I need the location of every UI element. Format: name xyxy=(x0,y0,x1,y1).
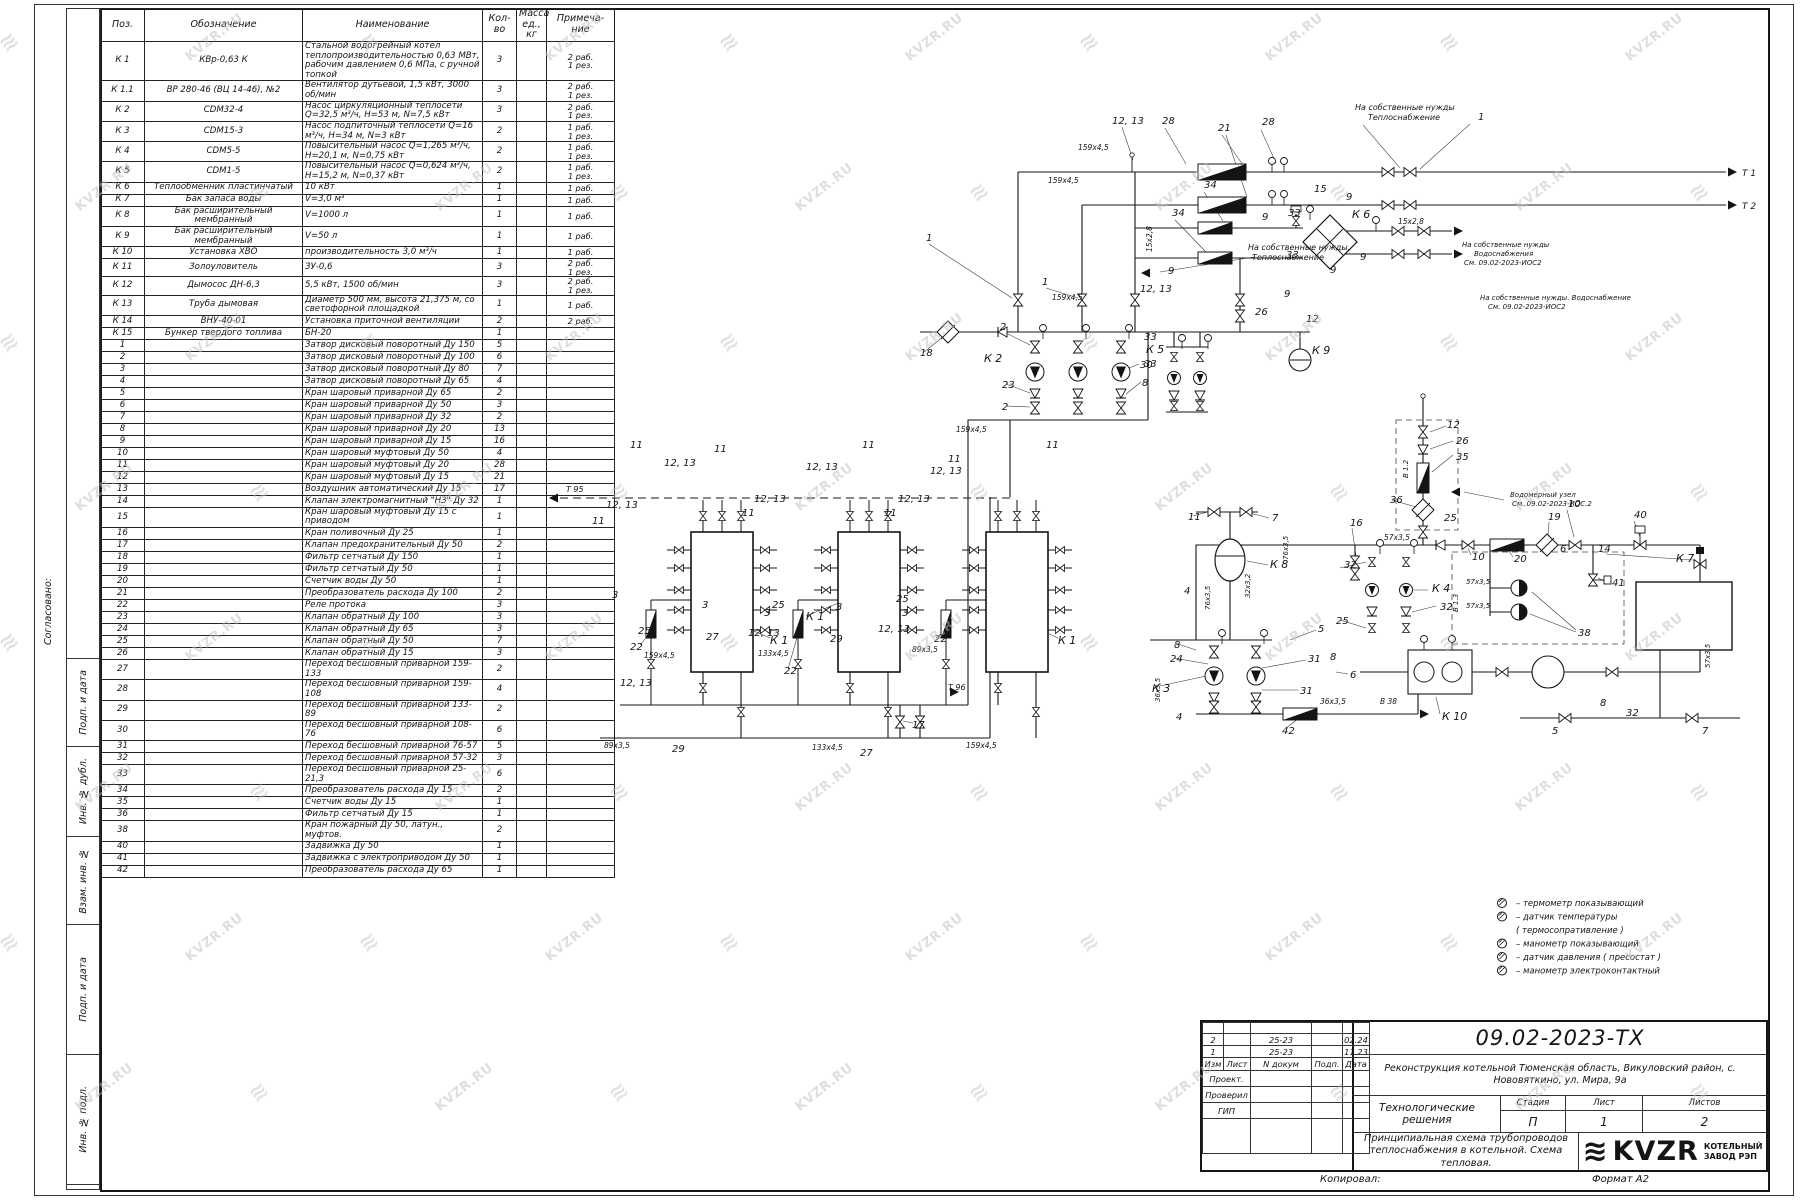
gauge-icon xyxy=(1261,630,1268,645)
valve-icon xyxy=(700,684,707,693)
flow-transducer-icon xyxy=(1198,222,1232,234)
gauge-icon xyxy=(1281,158,1288,173)
company-logo: ≋ KVZR КОТЕЛЬНЫЙ ЗАВОД РЭП xyxy=(1579,1133,1766,1170)
schematic-label: 9 xyxy=(1168,266,1174,277)
schematic-label: 159х4,5 xyxy=(966,741,997,750)
schematic-label: 12, 13 xyxy=(1112,116,1144,127)
schematic-label: 25 xyxy=(638,626,651,637)
schematic-label: 1 xyxy=(1042,277,1048,288)
copied-label: Копировал: xyxy=(1320,1174,1381,1185)
valve-icon xyxy=(1404,168,1416,177)
legend-label: – датчик температуры xyxy=(1516,913,1618,923)
schematic-label: 25 xyxy=(896,594,909,605)
schematic-label: 8 xyxy=(1330,652,1336,663)
valve-icon xyxy=(675,547,684,554)
valve-icon xyxy=(1171,353,1178,362)
schematic-label: 33 xyxy=(1144,359,1157,370)
sheets-label: Листов xyxy=(1643,1096,1766,1110)
schematic-label: На собственные нужды. xyxy=(1248,243,1350,252)
title-block-cell: 1 xyxy=(1203,1046,1224,1058)
flow-transducer-icon xyxy=(1198,197,1246,213)
schematic-label: 3 xyxy=(612,590,618,601)
title-block-cell: Подп. xyxy=(1312,1058,1343,1071)
sheet-value: 1 xyxy=(1566,1111,1643,1132)
schematic-label: 11 xyxy=(884,508,897,519)
schematic-label: 34 xyxy=(1172,208,1185,219)
valve-icon xyxy=(738,708,745,717)
boiler-icon xyxy=(838,532,900,672)
valve-icon xyxy=(675,627,684,634)
schematic-label: 21 xyxy=(1218,123,1231,134)
schematic-label: 11 xyxy=(862,440,875,451)
schematic-label: 32 xyxy=(1344,560,1357,571)
schematic-label: 159х4,5 xyxy=(956,425,987,434)
valve-icon xyxy=(1056,627,1065,634)
schematic-label: 159х4,5 xyxy=(1048,176,1079,185)
gauge-icon xyxy=(1449,636,1456,651)
project-description: Реконструкция котельной Тюменская област… xyxy=(1354,1055,1766,1096)
schematic-label: 12, 13 xyxy=(878,624,910,635)
valve-icon xyxy=(847,684,854,693)
flow-arrow-icon xyxy=(1728,201,1737,210)
schematic-label: Т 96 xyxy=(948,683,966,692)
schematic-label: 17 xyxy=(912,720,925,731)
schematic-label: К 6 xyxy=(1352,208,1370,221)
schematic-label: 3 xyxy=(764,608,770,619)
generated-equipment xyxy=(646,325,1418,739)
schematic-label: 4 xyxy=(1184,586,1190,597)
schematic-label: 40 xyxy=(1634,510,1647,521)
title-block-cell xyxy=(1251,1071,1312,1087)
schematic-label: См. 09.02-2023-ИОС2 xyxy=(1488,303,1566,311)
valve-icon xyxy=(822,587,831,594)
schematic-label: 12, 13 xyxy=(748,628,780,639)
valve-icon xyxy=(1131,294,1140,306)
schematic-label: 57х3,5 xyxy=(1466,602,1491,610)
pump-icon xyxy=(1400,584,1413,597)
schematic-label: 32 xyxy=(1626,708,1639,719)
schematic-label: 36х3,5 xyxy=(1154,677,1162,702)
schematic-label: 28 xyxy=(1162,116,1175,127)
company-line2: ЗАВОД РЭП xyxy=(1704,1152,1757,1161)
schematic-label: См. 09.02-2023-ИОС2 xyxy=(1464,259,1542,267)
water-meter-icon xyxy=(1417,463,1429,493)
schematic-label: 32х3,2 xyxy=(1244,573,1252,598)
schematic-label: 1 xyxy=(926,233,932,244)
schematic-label: 12, 13 xyxy=(930,466,962,477)
title-block-cell xyxy=(1312,1034,1343,1046)
valve-icon xyxy=(908,565,917,572)
schematic-label: 15 xyxy=(1314,184,1327,195)
valve-icon xyxy=(1403,558,1410,567)
valve-icon xyxy=(866,512,873,521)
title-block-cell: 25-23 xyxy=(1251,1034,1312,1046)
schematic-label: К 4 xyxy=(1432,582,1450,595)
schematic-label: 9 xyxy=(1330,265,1336,276)
title-block-cell xyxy=(1251,1119,1312,1154)
valve-icon xyxy=(1210,701,1219,713)
schematic-label: 29 xyxy=(672,744,685,755)
flow-transducer-icon xyxy=(1283,708,1317,720)
schematic-label: 15х2,8 xyxy=(1398,217,1424,226)
schematic-label: Т 95 xyxy=(566,485,584,494)
title-block-cell xyxy=(1203,1119,1251,1154)
flow-transducer-icon xyxy=(1198,252,1232,264)
valve-icon xyxy=(1559,714,1571,723)
valve-icon xyxy=(1056,607,1065,614)
schematic-label: 25 xyxy=(772,600,785,611)
gauge-icon xyxy=(1269,191,1276,206)
valve-icon xyxy=(1031,341,1040,353)
legend-label: – манометр показывающий xyxy=(1516,940,1639,950)
schematic-label: 41 xyxy=(1612,578,1625,589)
check-valve-icon xyxy=(1418,445,1428,454)
schematic-label: 33 xyxy=(1288,208,1301,219)
schematic-label: 10 xyxy=(1568,499,1581,510)
pump-icon xyxy=(1069,363,1087,381)
pipe xyxy=(998,672,1036,738)
schematic-label: 29 xyxy=(830,634,843,645)
valve-icon xyxy=(970,587,979,594)
schematic-label: 33 xyxy=(1144,332,1157,343)
schematic-label: На собственные нужды. Водоснабжение xyxy=(1480,294,1631,302)
flow-arrow-icon xyxy=(1454,227,1463,236)
air-vent-icon xyxy=(1421,394,1425,398)
title-block-cell xyxy=(1224,1034,1251,1046)
schematic-label: 19 xyxy=(1548,512,1561,523)
schematic-label: 12, 13 xyxy=(664,458,696,469)
title-block-cell: Проверил xyxy=(1203,1087,1251,1103)
schematic-label: 9 xyxy=(1262,212,1268,223)
schematic-label: 38 xyxy=(1578,628,1591,639)
schematic-label: Водомерный узел xyxy=(1510,491,1576,499)
revision-grid: 225-2302.24125-2311.23ИзмЛистN докумПодп… xyxy=(1202,1022,1370,1154)
schematic-label: К 7 xyxy=(1676,552,1694,565)
title-block-cell: 25-23 xyxy=(1251,1046,1312,1058)
schematic-label: 4 xyxy=(1176,712,1182,723)
valve-icon xyxy=(675,587,684,594)
valve-icon xyxy=(1056,565,1065,572)
schematic-label: 8 xyxy=(1174,640,1180,651)
schematic-label: 1 xyxy=(1478,112,1484,123)
schematic-label: 18 xyxy=(920,348,933,359)
schematic-label: 32 xyxy=(1440,602,1453,613)
valve-icon xyxy=(908,607,917,614)
check-valve-icon xyxy=(1195,391,1205,400)
valve-icon xyxy=(1236,294,1245,306)
salt-tank-icon xyxy=(1532,656,1564,688)
valve-icon xyxy=(675,607,684,614)
pump-icon xyxy=(1112,363,1130,381)
title-block-cell: ГИП xyxy=(1203,1103,1251,1119)
valve-icon xyxy=(1419,526,1428,538)
title-block-cell: 2 xyxy=(1203,1034,1224,1046)
valve-icon xyxy=(1033,512,1040,521)
format-label: Формат А2 xyxy=(1592,1174,1649,1185)
valve-icon xyxy=(761,565,770,572)
title-block-cell xyxy=(1312,1087,1343,1103)
check-valve-icon xyxy=(1169,391,1179,400)
revision-table: 225-2302.24125-2311.23ИзмЛистN докумПодп… xyxy=(1202,1022,1354,1170)
schematic-label: 7 xyxy=(1702,726,1709,737)
valve-icon xyxy=(1496,668,1508,677)
check-valve-icon xyxy=(1236,310,1245,322)
check-valve-icon xyxy=(1073,389,1083,398)
note-arrow-icon xyxy=(1451,488,1460,497)
valve-icon xyxy=(822,627,831,634)
schematic-label: 31 xyxy=(1308,654,1321,665)
valve-icon xyxy=(700,512,707,521)
flow-arrow-icon xyxy=(1454,250,1463,259)
water-meter-icon xyxy=(1490,539,1524,551)
safety-valve-icon xyxy=(896,716,905,728)
valve-icon xyxy=(970,607,979,614)
schematic-label: 9 xyxy=(1284,289,1290,300)
boiler-icon xyxy=(691,532,753,672)
schematic-label: 36х3,5 xyxy=(1320,697,1346,706)
schematic-label: 31 xyxy=(1300,686,1313,697)
valve-icon xyxy=(822,565,831,572)
valve-icon xyxy=(1369,624,1376,633)
schematic-label: 3 xyxy=(902,608,908,619)
title-block-cell xyxy=(1312,1023,1343,1034)
valve-icon xyxy=(1418,227,1430,236)
schematic-label: На собственные нужды xyxy=(1355,103,1455,112)
title-block-cell xyxy=(1312,1119,1343,1154)
schematic-label: 57х3,5 xyxy=(1384,533,1410,542)
schematic-label: 22 xyxy=(934,634,947,645)
title-block-cell xyxy=(1203,1023,1224,1034)
title-block-cell xyxy=(1224,1023,1251,1034)
schematic-label: 25 xyxy=(1444,513,1457,524)
schematic-label: 35 xyxy=(1456,452,1469,463)
schematic-label: В 38 xyxy=(1380,697,1397,706)
gauge-icon xyxy=(1281,191,1288,206)
schematic-label: Теплоснабжение xyxy=(1252,253,1324,262)
fire-hydrant-valve-icon xyxy=(1511,604,1527,620)
note-arrow-icon xyxy=(1141,269,1150,278)
gauge-icon xyxy=(1219,630,1226,645)
schematic-label: 23 xyxy=(1002,380,1015,391)
title-block-cell xyxy=(1224,1046,1251,1058)
valve-icon xyxy=(1403,624,1410,633)
schematic-label: 20 xyxy=(1514,554,1527,565)
stage-label: Стадия xyxy=(1501,1096,1566,1110)
schematic-label: 12, 13 xyxy=(620,678,652,689)
valve-icon xyxy=(1252,701,1261,713)
title-block-cell xyxy=(1251,1087,1312,1103)
schematic-label: 159х4,5 xyxy=(1078,143,1109,152)
schematic-label: 159х4,5 xyxy=(644,651,675,660)
valve-icon xyxy=(1606,668,1618,677)
valve-icon xyxy=(1056,547,1065,554)
schematic-label: 27 xyxy=(706,632,719,643)
valve-icon xyxy=(847,512,854,521)
strainer-icon xyxy=(1412,499,1434,521)
pump-icon xyxy=(1026,363,1044,381)
schematic-label: На собственные нужды xyxy=(1462,241,1550,249)
valve-icon xyxy=(822,547,831,554)
valve-icon xyxy=(1210,646,1219,658)
valve-icon xyxy=(1074,341,1083,353)
section-title: Технологические решения xyxy=(1354,1096,1501,1132)
schematic-label: 12, 13 xyxy=(806,462,838,473)
company-line1: КОТЕЛЬНЫЙ xyxy=(1704,1142,1763,1151)
valve-icon xyxy=(995,512,1002,521)
schematic-label: 8 xyxy=(1600,698,1606,709)
schematic-label: В 1.3 xyxy=(1452,594,1460,612)
logo-word: KVZR xyxy=(1613,1136,1699,1167)
valve-icon xyxy=(1033,708,1040,717)
schematic-label: Теплоснабжение xyxy=(1368,113,1440,122)
pump-icon xyxy=(1247,667,1265,685)
valve-icon xyxy=(1240,508,1252,517)
schematic-label: 3 xyxy=(836,602,842,613)
legend-label: – датчик давления ( пресостат ) xyxy=(1516,953,1661,963)
schematic-label: В 1.2 xyxy=(1402,459,1410,478)
drawing-title: Принципиальная схема трубопроводов тепло… xyxy=(1354,1133,1579,1170)
schematic-label: 11 xyxy=(592,516,605,527)
schematic-label: 11 xyxy=(1188,512,1201,523)
valve-icon xyxy=(1014,294,1023,306)
valve-icon xyxy=(1569,541,1581,550)
title-block: 225-2302.24125-2311.23ИзмЛистN докумПодп… xyxy=(1200,1020,1768,1172)
strainer-icon xyxy=(1536,534,1558,556)
valve-icon xyxy=(1117,402,1126,414)
schematic-label: Т 2 xyxy=(1742,202,1756,212)
air-vent-icon xyxy=(1130,153,1134,157)
sheet-label: Лист xyxy=(1566,1096,1643,1110)
check-valve-icon xyxy=(1030,389,1040,398)
legend: – термометр показывающий– датчик темпера… xyxy=(1498,899,1661,977)
gate-valve-icon xyxy=(1634,526,1646,550)
valve-icon xyxy=(1197,402,1204,411)
valve-icon xyxy=(1208,508,1220,517)
valve-icon xyxy=(995,684,1002,693)
schematic-label: К 10 xyxy=(1442,710,1467,723)
title-block-cell: N докум xyxy=(1251,1058,1312,1071)
schematic-label: Водоснабжения xyxy=(1474,250,1533,258)
schematic-label: 3 xyxy=(702,600,708,611)
schematic-label: 28 xyxy=(1262,117,1275,128)
valve-icon xyxy=(1382,168,1394,177)
schematic-label: 27 xyxy=(860,748,873,759)
schematic-label: 16 xyxy=(1350,518,1363,529)
valve-icon xyxy=(970,547,979,554)
line-arrow-icon xyxy=(549,494,558,503)
schematic-label: К 9 xyxy=(1312,344,1330,357)
schematic-label: 11 xyxy=(1046,440,1059,451)
schematic-label: 12, 13 xyxy=(606,500,638,511)
schematic-label: 36 xyxy=(1390,495,1403,506)
motorized-gate-valve-icon xyxy=(1589,574,1612,586)
schematic-label: К 1 xyxy=(806,610,824,623)
schematic-label: 11 xyxy=(630,440,643,451)
gauge-icon xyxy=(1373,217,1380,232)
valve-icon xyxy=(943,660,950,669)
valve-icon xyxy=(1369,558,1376,567)
valve-icon xyxy=(908,547,917,554)
valve-icon xyxy=(1074,402,1083,414)
schematic-label: 7 xyxy=(1272,513,1279,524)
schematic-label: 11 xyxy=(714,444,727,455)
check-valve-icon xyxy=(1401,607,1411,616)
schematic-label: 12 xyxy=(1447,420,1460,431)
title-block-cell xyxy=(1312,1046,1343,1058)
valve-icon xyxy=(1117,341,1126,353)
schematic-label: 34 xyxy=(1204,180,1217,191)
drawing-sheet: Согласовано: Подп. и датаИнв. № дубл.Вза… xyxy=(0,0,1800,1200)
valve-icon xyxy=(1171,402,1178,411)
gauge-icon xyxy=(1411,540,1418,555)
valve-icon xyxy=(1056,587,1065,594)
boiler-icon xyxy=(986,532,1048,672)
strainer-icon xyxy=(937,321,959,343)
schematic-label: 12, 13 xyxy=(754,494,786,505)
schematic-label: 8 xyxy=(1142,378,1148,389)
fire-unit-boundary xyxy=(1452,552,1624,644)
title-block-cell: Проект. xyxy=(1203,1071,1251,1087)
valve-icon xyxy=(908,587,917,594)
valve-icon xyxy=(1418,250,1430,259)
valve-icon xyxy=(1686,714,1698,723)
valve-icon xyxy=(1392,227,1404,236)
title-block-cell xyxy=(1251,1023,1312,1034)
flow-arrow-icon xyxy=(1728,168,1737,177)
valve-icon xyxy=(1419,426,1428,438)
valve-icon xyxy=(885,708,892,717)
valve-icon xyxy=(675,565,684,572)
legend-label: ( термосопративление ) xyxy=(1516,926,1624,936)
pump-icon xyxy=(1168,372,1181,385)
schematic-label: 26 xyxy=(1456,436,1469,447)
pump-icon xyxy=(1205,667,1223,685)
valve-icon xyxy=(1197,353,1204,362)
fire-hydrant-valve-icon xyxy=(1511,580,1527,596)
schematic-label: 76х3,5 xyxy=(1204,585,1212,610)
expansion-tank-icon xyxy=(1215,539,1245,581)
check-valve-icon xyxy=(1436,540,1445,550)
schematic-label: 11 xyxy=(742,508,755,519)
schematic-label: 11 xyxy=(948,454,961,465)
check-valve-icon xyxy=(1116,389,1126,398)
pump-icon xyxy=(1194,372,1207,385)
schematic-label: 12, 13 xyxy=(898,494,930,505)
gauge-icon xyxy=(1269,158,1276,173)
schematic-label: 9 xyxy=(1346,192,1352,203)
schematic-label: 76х3,5 xyxy=(1282,535,1290,560)
schematic-label: 6 xyxy=(1350,670,1356,681)
schematic-label: 2 xyxy=(1000,322,1006,333)
valve-icon xyxy=(648,660,655,669)
schematic-label: Т 1 xyxy=(1742,169,1756,179)
schematic-label: 5 xyxy=(1318,624,1324,635)
valve-icon xyxy=(761,587,770,594)
legend-label: – манометр электроконтактный xyxy=(1516,967,1660,977)
schematic-label: 159х4,5 xyxy=(1052,293,1083,302)
title-block-cell: Лист xyxy=(1224,1058,1251,1071)
flow-transducer-icon xyxy=(1198,164,1246,180)
document-number: 09.02-2023-ТХ xyxy=(1354,1022,1766,1055)
title-block-cell xyxy=(1312,1071,1343,1087)
valve-icon xyxy=(1031,402,1040,414)
schematic-label: К 5 xyxy=(1146,343,1164,356)
schematic-label: 133х4,5 xyxy=(758,649,789,658)
flow-arrow-icon xyxy=(1420,710,1429,719)
logo-mark-icon: ≋ xyxy=(1582,1137,1607,1167)
title-block-cell: Изм xyxy=(1203,1058,1224,1071)
schematic-label: 42 xyxy=(1282,726,1295,737)
